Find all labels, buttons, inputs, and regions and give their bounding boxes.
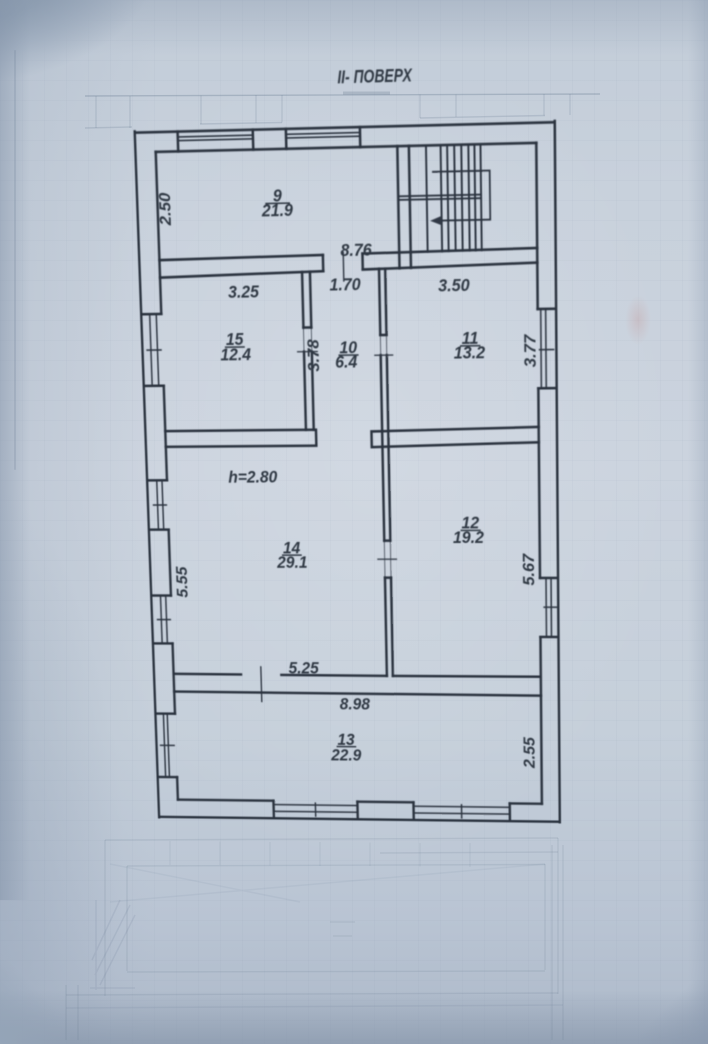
svg-text:3.25: 3.25 (228, 283, 260, 302)
svg-text:2.55: 2.55 (521, 736, 539, 769)
svg-text:3.77: 3.77 (522, 334, 540, 368)
svg-text:2.50: 2.50 (156, 192, 174, 226)
svg-text:8.76: 8.76 (340, 241, 372, 260)
svg-text:19.2: 19.2 (453, 529, 484, 547)
svg-text:3.78: 3.78 (305, 338, 323, 371)
svg-text:1.70: 1.70 (329, 275, 361, 294)
svg-text:h=2.80: h=2.80 (228, 468, 278, 486)
svg-text:12.4: 12.4 (220, 346, 251, 364)
svg-text:13.2: 13.2 (454, 344, 486, 363)
svg-text:29.1: 29.1 (276, 554, 308, 572)
svg-text:21.9: 21.9 (261, 201, 294, 220)
svg-text:5.25: 5.25 (288, 660, 319, 678)
svg-text:3.50: 3.50 (438, 277, 470, 296)
svg-text:6.4: 6.4 (335, 353, 358, 371)
svg-text:5.55: 5.55 (173, 566, 191, 598)
svg-text:5.67: 5.67 (520, 553, 538, 586)
svg-text:8.98: 8.98 (340, 696, 371, 714)
svg-text:II- ПОВЕРХ: II- ПОВЕРХ (337, 64, 413, 87)
svg-text:22.9: 22.9 (330, 747, 362, 765)
